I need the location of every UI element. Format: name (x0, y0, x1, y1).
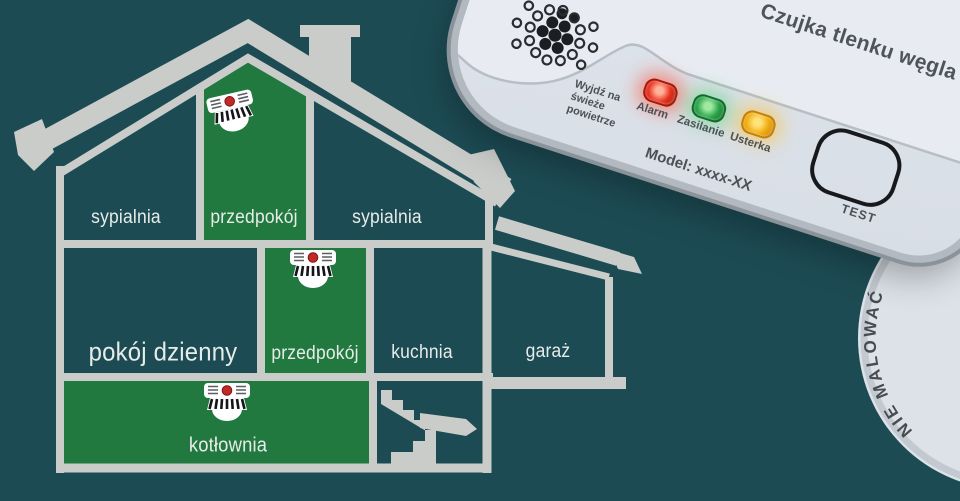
infographic-canvas: sypialnia przedpokój sypialnia pokój dzi… (0, 0, 960, 501)
